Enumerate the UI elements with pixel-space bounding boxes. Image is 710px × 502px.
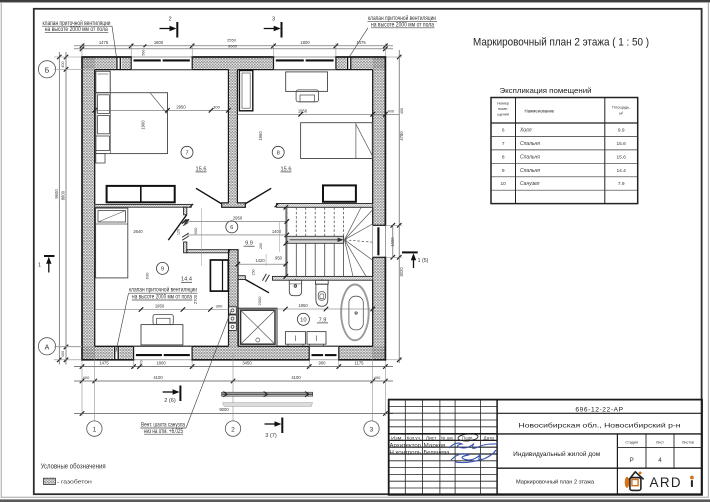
svg-text:120: 120	[176, 229, 180, 235]
svg-text:570: 570	[139, 360, 143, 366]
svg-text:Марков: Марков	[424, 443, 446, 449]
svg-text:Экспликация помещений: Экспликация помещений	[500, 86, 592, 95]
svg-text:Маркировочный план 2 этажа: Маркировочный план 2 этажа	[516, 479, 594, 486]
svg-text:Листов: Листов	[682, 440, 694, 444]
svg-text:200: 200	[259, 243, 263, 249]
svg-text:300: 300	[216, 304, 223, 309]
svg-text:1960: 1960	[258, 131, 263, 141]
svg-text:Номер: Номер	[497, 101, 509, 106]
svg-text:9000: 9000	[228, 43, 238, 48]
svg-text:14.4: 14.4	[181, 277, 192, 283]
svg-text:А: А	[45, 344, 50, 351]
svg-text:1400: 1400	[272, 229, 282, 234]
svg-text:клапан приточной вентиляции: клапан приточной вентиляции	[43, 20, 111, 27]
svg-text:1950: 1950	[298, 303, 308, 308]
svg-text:7.9: 7.9	[618, 181, 625, 187]
svg-text:клапан приточной вентиляции: клапан приточной вентиляции	[129, 287, 197, 294]
svg-text:1950: 1950	[155, 304, 165, 309]
svg-text:Лист: Лист	[426, 436, 437, 441]
svg-text:Дата: Дата	[483, 436, 494, 441]
svg-text:7: 7	[502, 141, 505, 147]
svg-text:9000: 9000	[219, 407, 229, 412]
svg-text:Архитектор: Архитектор	[390, 443, 422, 449]
svg-text:3450: 3450	[242, 361, 252, 366]
svg-text:900: 900	[193, 227, 198, 234]
svg-text:9.9: 9.9	[245, 241, 253, 247]
svg-text:2550: 2550	[227, 38, 237, 43]
svg-text:поме-: поме-	[498, 106, 509, 111]
svg-text:Спальня: Спальня	[520, 154, 540, 160]
svg-text:950: 950	[275, 256, 283, 261]
svg-text:900: 900	[319, 361, 327, 366]
svg-text:Холл: Холл	[519, 128, 532, 134]
svg-text:9: 9	[502, 168, 505, 174]
svg-text:клапан приточной вентиляции: клапан приточной вентиляции	[368, 15, 436, 22]
svg-text:1475: 1475	[99, 40, 109, 45]
svg-text:1: 1	[38, 263, 41, 269]
svg-text:1800: 1800	[156, 361, 166, 366]
svg-text:9.9: 9.9	[618, 128, 625, 134]
svg-text:500: 500	[142, 50, 146, 56]
svg-text:1175: 1175	[354, 361, 364, 366]
svg-text:ARD: ARD	[650, 475, 682, 490]
svg-text:2000: 2000	[257, 296, 262, 306]
svg-text:14.4: 14.4	[617, 168, 627, 174]
svg-text:Изм.: Изм.	[391, 436, 403, 441]
svg-text:Индивидуальный жилой дом: Индивидуальный жилой дом	[513, 451, 600, 458]
svg-text:Р: Р	[630, 457, 634, 464]
svg-text:Подп.: Подп.	[462, 436, 474, 441]
svg-text:Кол.уч.: Кол.уч.	[407, 436, 422, 441]
svg-text:6: 6	[502, 128, 505, 134]
svg-text:Лист: Лист	[656, 440, 664, 444]
svg-text:4: 4	[658, 457, 662, 464]
svg-text:15.6: 15.6	[196, 166, 207, 172]
svg-text:1800: 1800	[300, 40, 310, 45]
svg-text:400: 400	[61, 351, 65, 357]
svg-text:1475: 1475	[99, 361, 109, 366]
svg-text:Наименование: Наименование	[525, 109, 555, 114]
svg-text:3 (7): 3 (7)	[265, 433, 277, 439]
svg-text:400: 400	[387, 108, 394, 113]
svg-text:15.6: 15.6	[617, 154, 627, 160]
svg-text:9: 9	[161, 267, 164, 273]
svg-text:Н.контроль: Н.контроль	[390, 450, 422, 456]
svg-text:10: 10	[300, 317, 306, 323]
svg-text:8: 8	[502, 154, 505, 160]
svg-text:2950: 2950	[233, 215, 243, 220]
svg-text:1950: 1950	[298, 108, 308, 113]
svg-text:630: 630	[145, 272, 150, 279]
svg-text:1 (5): 1 (5)	[418, 258, 429, 264]
svg-text:Беленева: Беленева	[424, 450, 450, 456]
svg-text:2950: 2950	[176, 104, 186, 109]
svg-text:400: 400	[83, 375, 90, 380]
svg-text:9600: 9600	[54, 189, 59, 199]
svg-text:2640: 2640	[133, 229, 143, 234]
svg-text:7: 7	[185, 150, 188, 156]
svg-text:4100: 4100	[291, 375, 301, 380]
svg-text:3020: 3020	[399, 267, 404, 277]
svg-text:2700: 2700	[193, 294, 198, 304]
svg-text:400: 400	[400, 108, 404, 114]
svg-text:Санузел: Санузел	[520, 181, 540, 187]
svg-text:150: 150	[252, 269, 256, 275]
svg-text:Площадь,: Площадь,	[612, 105, 630, 110]
svg-text:Стадия: Стадия	[625, 440, 638, 444]
svg-text:15.6: 15.6	[617, 141, 627, 147]
svg-text:Спальня: Спальня	[520, 168, 540, 174]
svg-text:3: 3	[272, 17, 275, 23]
svg-text:Новосибирская обл., Новосибирс: Новосибирская обл., Новосибирский р-н	[519, 423, 681, 430]
svg-text:7.9: 7.9	[319, 317, 327, 323]
svg-text:1000: 1000	[390, 237, 395, 247]
svg-text:6: 6	[230, 225, 233, 231]
svg-text:1960: 1960	[141, 120, 146, 130]
svg-text:1420: 1420	[255, 258, 265, 263]
svg-text:Маркировочный план 2 этажа ( 1: Маркировочный план 2 этажа ( 1 : 50 )	[473, 37, 649, 49]
svg-text:2: 2	[231, 426, 235, 433]
svg-text:696-12-22-АР: 696-12-22-АР	[575, 406, 623, 413]
svg-text:400: 400	[61, 61, 65, 67]
svg-text:4780: 4780	[399, 131, 404, 141]
svg-text:4100: 4100	[153, 375, 163, 380]
svg-text:300: 300	[213, 104, 220, 109]
svg-text:Б: Б	[45, 67, 50, 74]
svg-text:№ док.: № док.	[441, 436, 454, 441]
svg-text:Вент. шахта санузла: Вент. шахта санузла	[141, 423, 186, 429]
svg-text:2 (6): 2 (6)	[164, 398, 176, 404]
svg-text:м²: м²	[619, 111, 624, 116]
svg-text:1800: 1800	[154, 40, 164, 45]
svg-text:1475: 1475	[356, 40, 366, 45]
svg-text:400: 400	[374, 375, 381, 380]
svg-text:15.6: 15.6	[281, 166, 292, 172]
svg-text:Спальня: Спальня	[520, 141, 540, 147]
svg-text:Условные обозначения: Условные обозначения	[41, 463, 106, 471]
svg-text:8: 8	[277, 150, 280, 156]
svg-text:1: 1	[93, 426, 97, 433]
svg-text:- газобетон: - газобетон	[57, 480, 92, 486]
svg-text:щения: щения	[497, 112, 509, 117]
svg-text:2: 2	[168, 17, 171, 23]
svg-text:8800: 8800	[61, 190, 66, 200]
svg-text:10: 10	[501, 181, 507, 187]
svg-text:3: 3	[370, 426, 374, 433]
